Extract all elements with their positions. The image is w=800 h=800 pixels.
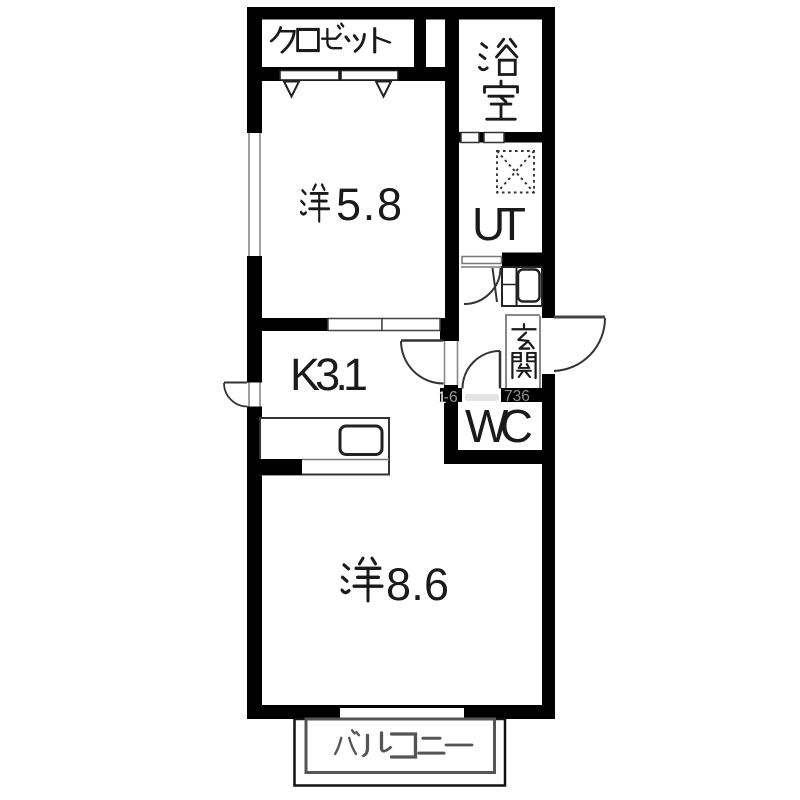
svg-text:-6: -6 xyxy=(444,389,458,406)
svg-text:K3.1: K3.1 xyxy=(290,349,368,400)
svg-text:UT: UT xyxy=(472,198,526,250)
svg-text:8.6: 8.6 xyxy=(386,559,449,610)
svg-text:WC: WC xyxy=(465,400,533,452)
svg-text:736: 736 xyxy=(504,388,530,405)
svg-text:5.8: 5.8 xyxy=(336,179,402,230)
